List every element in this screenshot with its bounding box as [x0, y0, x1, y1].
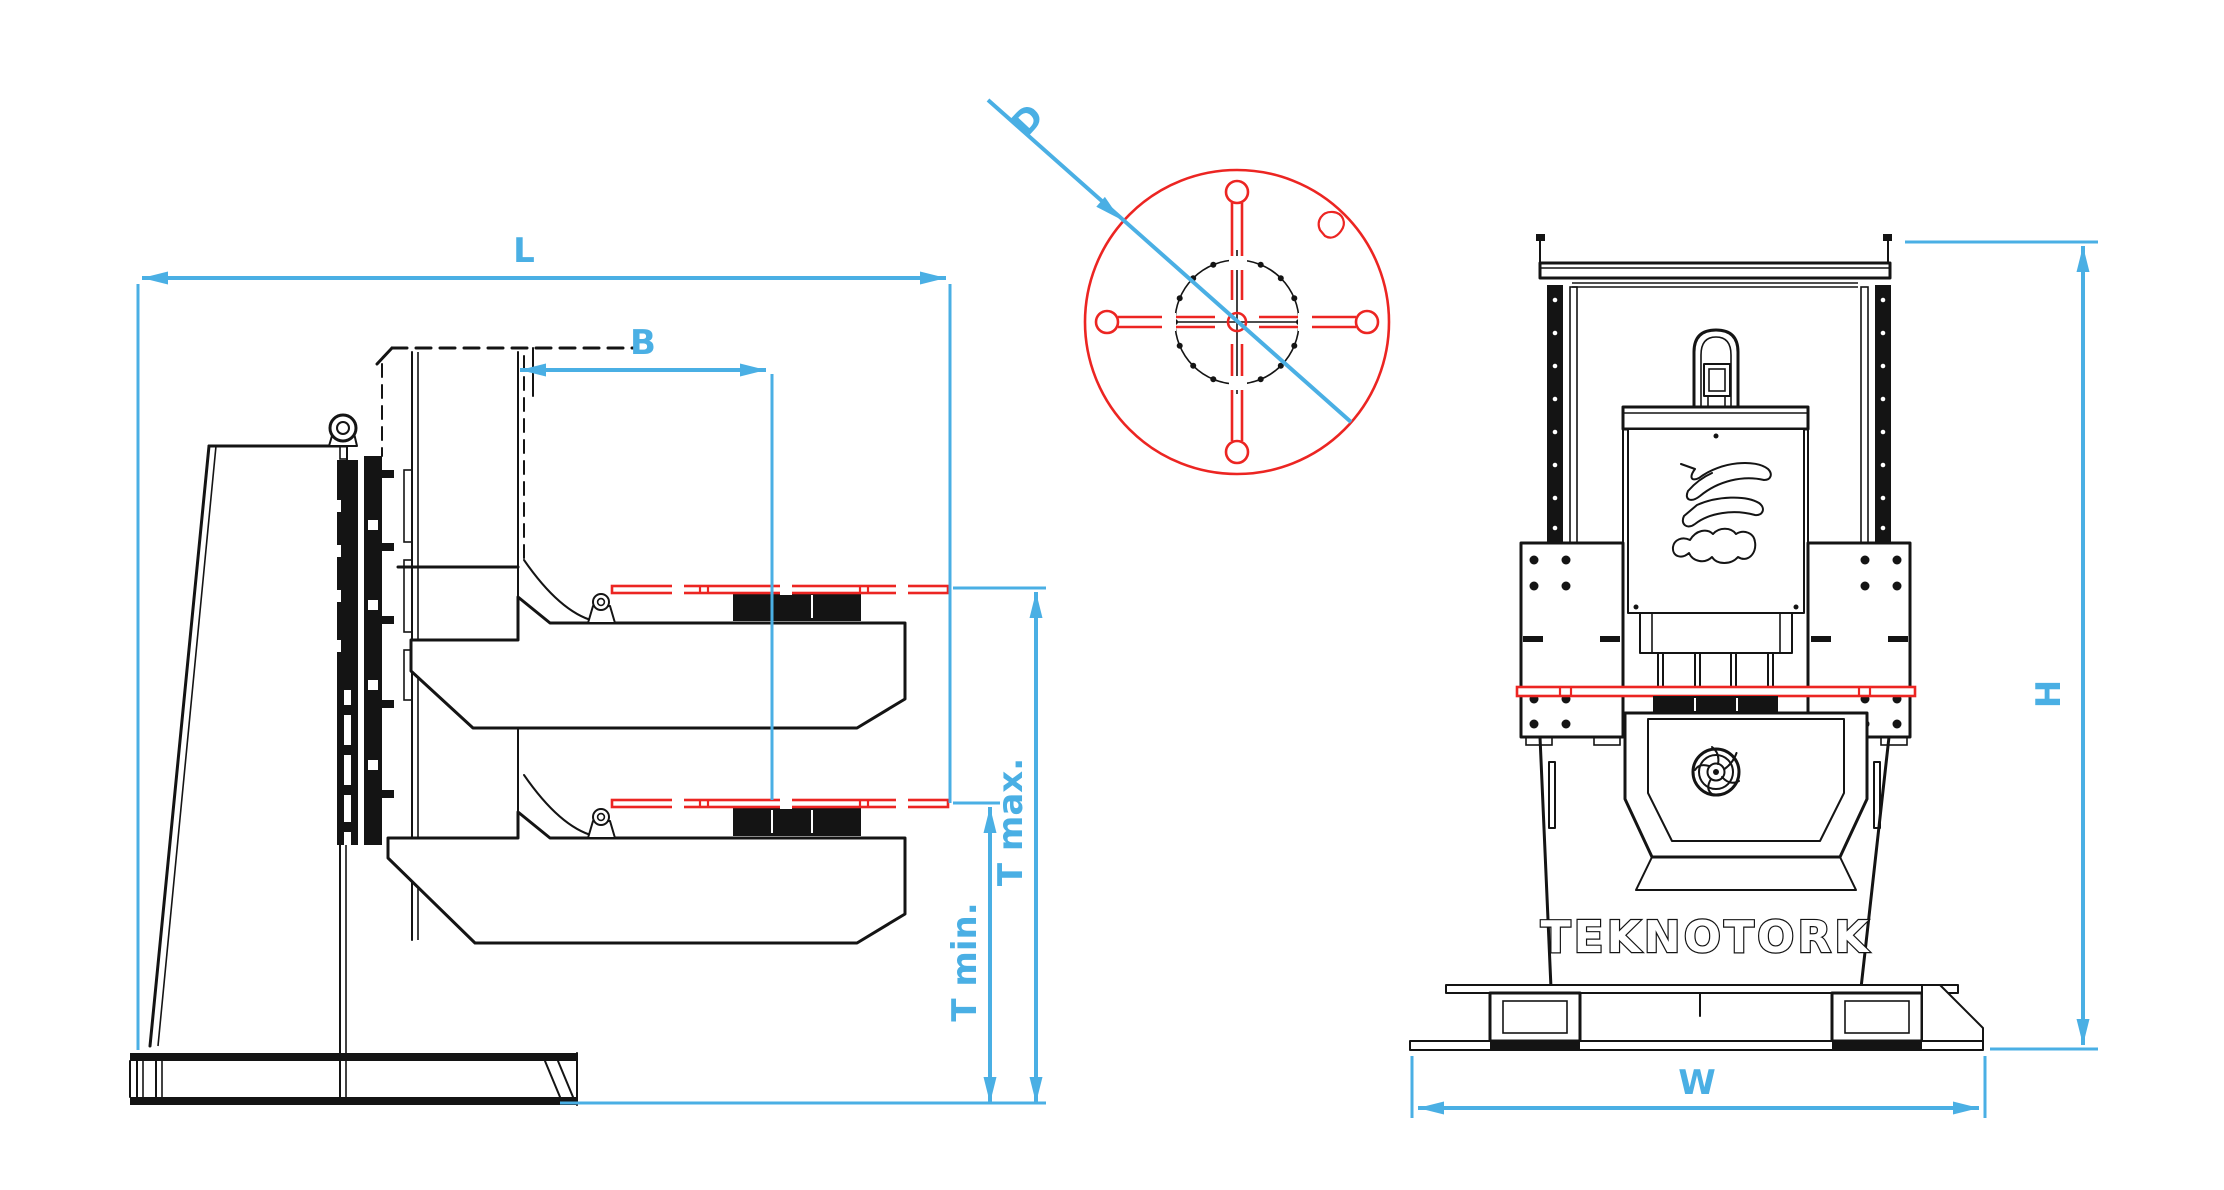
- dim-D: D: [988, 97, 1351, 422]
- dim-label-W: W: [1678, 1063, 1716, 1103]
- mast-rail-right: [1861, 285, 1891, 543]
- top-crossbar: [1536, 234, 1892, 287]
- technical-drawing: TEKNOTORK L: [0, 0, 2224, 1190]
- upper-table-line: [612, 584, 948, 595]
- dim-H: H: [1905, 242, 2098, 1049]
- front-view: TEKNOTORK: [1410, 234, 1983, 1050]
- upper-table-mount-block: [733, 592, 861, 621]
- handwheel-icon: [1693, 747, 1739, 795]
- handwheel-panel: [1625, 713, 1867, 857]
- dim-W: W: [1412, 1056, 1985, 1118]
- dim-label-B: B: [630, 323, 656, 363]
- carriage-dashed-outline: [377, 348, 636, 560]
- dim-label-D: D: [1004, 97, 1053, 145]
- lower-table-mount-block: [733, 807, 861, 836]
- lifting-hook: [1694, 330, 1738, 407]
- side-view: [130, 348, 948, 1105]
- keyway-mark: [1319, 212, 1344, 238]
- drawing-canvas: TEKNOTORK L: [0, 0, 2224, 1190]
- carriage-front: [1623, 407, 1808, 713]
- machine-base-front: [1410, 985, 1983, 1050]
- column-pedestal: [150, 415, 357, 1053]
- upper-boom: [411, 560, 948, 728]
- dim-label-H: H: [2029, 680, 2069, 708]
- lower-table-line: [612, 798, 948, 809]
- body-front: TEKNOTORK: [1540, 713, 1889, 988]
- logo-panel: [1628, 429, 1804, 613]
- machine-base-side: [130, 1053, 577, 1105]
- dim-label-T-max: T max.: [991, 758, 1031, 886]
- gear-rack-stack: [335, 456, 394, 845]
- dim-T-min: T min.: [945, 803, 1000, 1103]
- lower-boom: [388, 775, 948, 943]
- mast-rail-left: [1547, 285, 1577, 543]
- side-plate-left: [1521, 543, 1623, 745]
- brand-text: TEKNOTORK: [1541, 912, 1872, 963]
- dim-label-L: L: [513, 231, 535, 271]
- dim-label-T-min: T min.: [945, 902, 985, 1021]
- column-eyebolt-icon: [329, 415, 357, 459]
